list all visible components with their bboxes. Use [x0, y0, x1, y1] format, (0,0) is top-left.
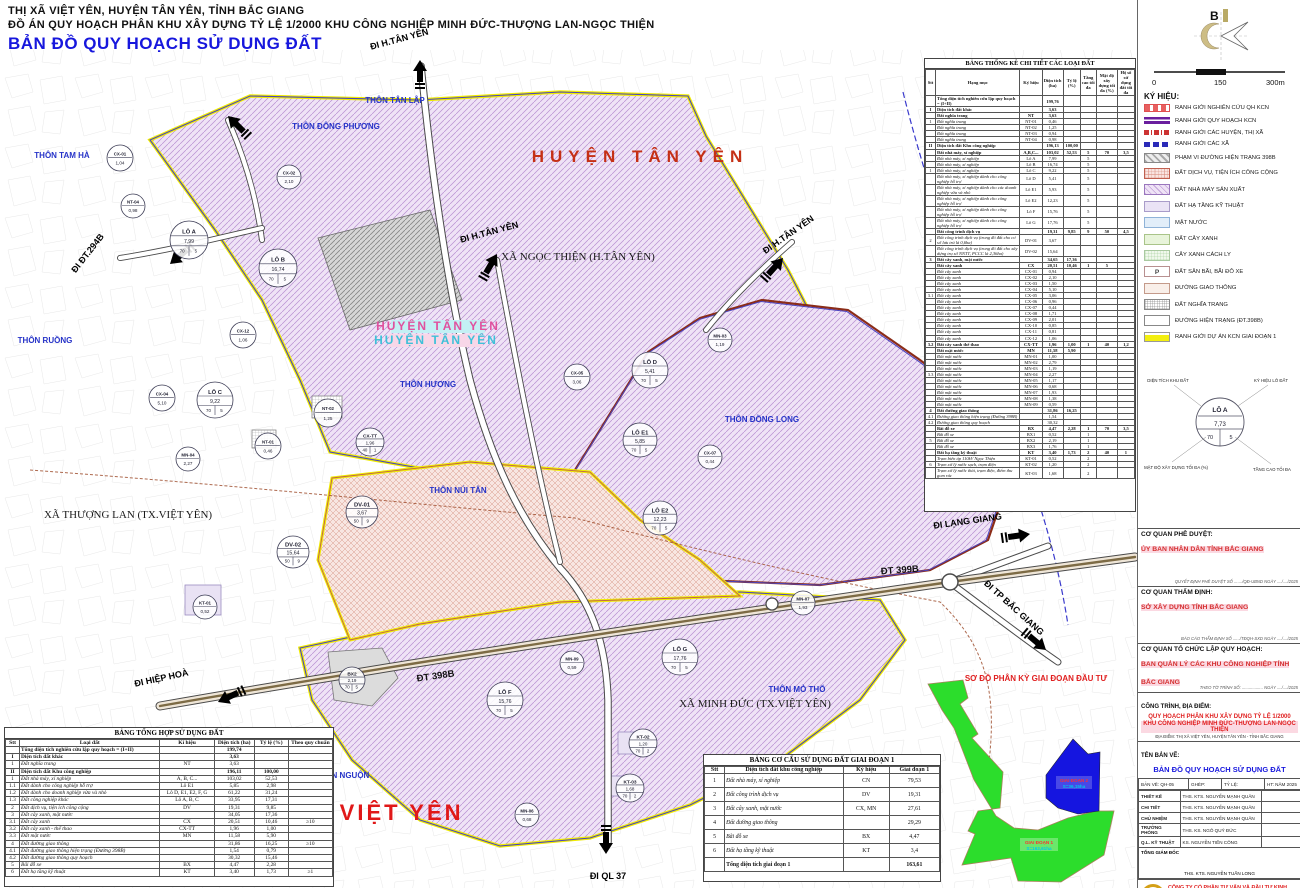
table-cell: Lô F	[1020, 206, 1042, 217]
table-row: 3.3Đất mặt nướcMN11,585,90	[6, 833, 333, 840]
table-cell: ≥10	[288, 840, 332, 847]
table-cell: Đất nghĩa trang	[20, 761, 160, 768]
table-cell: II	[6, 768, 20, 775]
sw-398b	[1144, 153, 1170, 163]
table-cell: 5	[1080, 195, 1096, 206]
table-row: Tổng diện tích nghiên cứu lập quy hoạch …	[6, 747, 333, 754]
table-cell: CX	[160, 819, 214, 826]
legend-item: ĐẤT HẠ TẦNG KỸ THUẬT	[1144, 201, 1299, 212]
map-label: THÔN TÂN LẬP	[365, 96, 425, 105]
lot-circle-text: 70	[269, 277, 274, 282]
table-cell: BX	[160, 862, 214, 869]
table-cell: Đất đường giao thông	[20, 840, 160, 847]
sw-cemetery	[1144, 299, 1170, 310]
sw-factory	[1144, 184, 1170, 195]
lot-circle-outline	[791, 591, 815, 615]
lot-circle-text: 5,85	[635, 439, 645, 445]
table-cell: Đất mặt nước	[20, 833, 160, 840]
table-cell: Đất dịch vụ, tiện ích công cộng	[20, 804, 160, 811]
table-cell	[843, 816, 889, 830]
staff-cell	[1262, 837, 1300, 848]
lot-circle-outline	[564, 364, 590, 390]
legend-list: RANH GIỚI NGHIÊN CỨU QH KCNRANH GIỚI QUY…	[1144, 104, 1299, 347]
table-cell: 5	[6, 862, 20, 869]
table-cell	[288, 775, 332, 782]
lot-circle-text: MN-03	[713, 334, 727, 339]
table-cell: Lô A, B, C	[160, 797, 214, 804]
table-row: 6Đất hạ tầng kỹ thuậtKT3,401,73≥1	[6, 869, 333, 876]
table-cell	[926, 195, 936, 206]
title-block: CÔNG TRÌNH, ĐỊA ĐIỂM: QUY HOẠCH PHÂN KHU…	[1138, 692, 1300, 888]
column-header: Ký hiệu	[843, 767, 889, 774]
approval-authority: CƠ QUAN PHÊ DUYỆT: ỦY BAN NHÂN DÂN TỈNH …	[1138, 528, 1300, 586]
table-cell	[705, 858, 725, 872]
lot-circle-text: 50	[285, 559, 290, 564]
svg-text:KÝ HIỆU LÔ ĐẤT: KÝ HIỆU LÔ ĐẤT	[1254, 378, 1288, 383]
table-cell: 1,68	[1042, 468, 1063, 479]
table-row: Đất nhà máy, xí nghiệp dành cho công ngh…	[926, 173, 1135, 184]
lot-circle: DV-013,67509	[346, 496, 378, 528]
table-cell: 5,93	[1042, 184, 1063, 195]
column-header: Loại đất	[20, 740, 160, 747]
lot-circle-text: 40	[362, 447, 367, 452]
svg-text:150: 150	[1214, 78, 1227, 87]
staff-row: CHỦ NHIỆMTHS. KTS. NGUYỄN MẠNH QUÂN	[1139, 813, 1300, 824]
table-cell: 3	[705, 802, 725, 816]
lot-circle-text: MN-06	[520, 809, 534, 814]
svg-text:S=36,15ha: S=36,15ha	[1063, 784, 1086, 789]
lot-circle-text: 70	[671, 665, 676, 670]
lot-circle-text: 15,64	[287, 551, 300, 557]
lot-circle-text: 0,68	[523, 817, 532, 822]
sw-kcn	[1144, 117, 1170, 124]
legend-label: MẶT NƯỚC	[1175, 220, 1207, 226]
table-cell: Bãi đỗ xe	[725, 830, 844, 844]
table-cell: I	[6, 754, 20, 761]
table-cell	[288, 811, 332, 818]
column-header: Stt	[926, 70, 936, 96]
table-row: Tổng diện tích nghiên cứu lập quy hoạch …	[926, 96, 1135, 107]
table-cell: KT-03	[1020, 468, 1042, 479]
table-cell	[6, 747, 20, 754]
table-cell: Tổng diện tích nghiên cứu lập quy hoạch …	[936, 96, 1020, 107]
table-cell: 5	[1080, 206, 1096, 217]
drawing-name-section: TÊN BẢN VẼ: BẢN ĐỒ QUY HOẠCH SỬ DỤNG ĐẤT	[1138, 741, 1300, 778]
plan-sheet: HUYỆN TÂN YÊNXÃ NGỌC THIỆN (H.TÂN YÊN)XÃ…	[0, 0, 1300, 888]
table-cell: 52,53	[254, 775, 288, 782]
lot-circle-text: 1,68	[626, 786, 635, 791]
page-title: BẢN ĐỒ QUY HOẠCH SỬ DỤNG ĐẤT	[8, 34, 655, 54]
table-cell: 20,51	[214, 819, 254, 826]
table-cell	[254, 761, 288, 768]
column-header: Diện tích (ha)	[1042, 70, 1063, 96]
legend-title: KÝ HIỆU:	[1144, 92, 1179, 101]
table-cell: 5,41	[1042, 173, 1063, 184]
lot-circle-text: KT-01	[199, 601, 212, 606]
map-label: THÔN ĐỒNG LONG	[725, 414, 799, 424]
staff-cell: TRƯỞNG PHÒNG	[1139, 824, 1181, 837]
lot-circle-text: 70	[641, 378, 646, 383]
table-cell: Đất công trình dịch vụ	[725, 788, 844, 802]
table-cell	[1063, 246, 1080, 257]
table-cell: 33,95	[214, 797, 254, 804]
table-cell: 31,86	[214, 840, 254, 847]
table-cell	[926, 206, 936, 217]
table-cell: 17,76	[1042, 217, 1063, 228]
sw-greeniso	[1144, 250, 1170, 261]
table-row: 4Đất đường giao thông31,8616,25≥10	[6, 840, 333, 847]
table-cell	[843, 858, 889, 872]
map-label: XÃ MINH ĐỨC (TX.VIỆT YÊN)	[679, 698, 831, 710]
lot-circle-outline	[230, 322, 256, 348]
table-cell: KT	[843, 844, 889, 858]
lot-circle-text: MN-09	[565, 657, 579, 662]
table-cell: Đất cây xanh, mặt nước	[725, 802, 844, 816]
table-row: 2Đất dịch vụ, tiện ích công cộngDV19,319…	[6, 804, 333, 811]
table-cell: Trạm xử lý nước thải, trạm điện, điểm th…	[936, 468, 1020, 479]
table-cell: Đất nhà máy, xí nghiệp	[20, 775, 160, 782]
table-cell: 1,00	[254, 826, 288, 833]
lot-circle: MN-031,19	[708, 328, 732, 352]
table-cell: 1,54	[214, 847, 254, 854]
lot-circle-outline	[708, 328, 732, 352]
lot-circle-text: 2,27	[184, 461, 193, 466]
lot-circle: CX-022,10	[277, 165, 301, 189]
column-header: Hệ số sử dụng đất tối đa	[1117, 70, 1134, 96]
project-line: ĐỒ ÁN QUY HOẠCH PHÂN KHU XÂY DỰNG TỶ LỆ …	[8, 19, 655, 31]
lot-circle-text: 70	[496, 708, 501, 713]
appraisal-authority: CƠ QUAN THẨM ĐỊNH: SỞ XÂY DỰNG TỈNH BẮC …	[1138, 586, 1300, 643]
lot-circle: CX-045,10	[149, 385, 175, 411]
table-cell	[288, 833, 332, 840]
legend-label: ĐẤT DỊCH VỤ, TIỆN ÍCH CÔNG CỘNG	[1175, 170, 1278, 176]
table-cell: 100,00	[254, 768, 288, 775]
legend-label: RANH GIỚI QUY HOẠCH KCN	[1175, 118, 1256, 124]
lot-circle-text: 70	[631, 447, 636, 452]
table-cell: DV-02	[1020, 246, 1042, 257]
table-cell: DV	[843, 788, 889, 802]
table-cell: Lô D	[1020, 173, 1042, 184]
lot-circle: CX-053,06	[564, 364, 590, 390]
table-cell	[160, 855, 214, 862]
lot-circle: KT-031,68702	[616, 774, 644, 802]
table-cell	[1117, 184, 1134, 195]
lot-circle-text: 16,74	[272, 267, 285, 273]
table-cell	[1117, 206, 1134, 217]
staff-row: CHI TIẾTTHS. KTS. NGUYỄN MẠNH QUÂN	[1139, 802, 1300, 813]
lot-circle-text: DV-02	[285, 543, 301, 549]
table-cell	[1080, 96, 1096, 107]
lot-circle-outline	[314, 399, 342, 427]
lot-circle: BX22,19705	[339, 667, 365, 693]
lot-circle-text: 2,19	[348, 678, 357, 683]
table-cell: NT	[160, 761, 214, 768]
table-cell	[926, 246, 936, 257]
table-cell: Đất nhà máy, xí nghiệp dành cho công ngh…	[936, 195, 1020, 206]
legend-item: RANH GIỚI CÁC XÃ	[1144, 141, 1299, 147]
phase1-label: GIAI ĐOẠN 1 S=163,61ha	[1020, 838, 1058, 851]
table-cell: 2	[6, 804, 20, 811]
lot-circle: LÔ C9,22705	[197, 382, 233, 418]
column-header: Tỷ lệ (%)	[254, 740, 288, 747]
table-cell: Lô D, E1, E2, F, G	[160, 790, 214, 797]
table-cell	[1096, 195, 1117, 206]
column-header: Theo quy chuẩn	[288, 740, 332, 747]
table-row: 1.1Đất dành cho công nghiệp hỗ trợLô E15…	[6, 783, 333, 790]
lot-circle: LÔ G17,76705	[662, 639, 698, 675]
table-cell: CX-TT	[160, 826, 214, 833]
lot-circle-outline	[255, 433, 281, 459]
legend-label: ĐẤT HẠ TẦNG KỸ THUẬT	[1175, 203, 1244, 209]
legend-label: ĐẤT NGHĨA TRANG	[1175, 302, 1228, 308]
table-row: 1Đất nhà máy, xí nghiệpCN79,53	[705, 774, 940, 788]
legend-label: ĐẤT CÂY XANH	[1175, 236, 1218, 242]
sw-phase1	[1144, 332, 1170, 342]
lot-circle-text: 0,46	[264, 449, 273, 454]
table-cell: 5,90	[254, 833, 288, 840]
table-cell: Lô E2	[1020, 195, 1042, 206]
lot-circle-text: KT-03	[623, 779, 636, 785]
table-cell: 3.2	[6, 826, 20, 833]
svg-text:LÔ A: LÔ A	[1212, 405, 1228, 414]
table-cell: Tổng diện tích giai đoạn 1	[725, 858, 844, 872]
table-cell: 5	[1080, 184, 1096, 195]
svg-text:5: 5	[1229, 435, 1232, 441]
lot-circle-text: 12,23	[654, 517, 667, 523]
lot-circle-text: 70	[180, 249, 185, 254]
lot-circle-text: LÔ G	[673, 645, 688, 653]
lot-circle-text: 0,52	[201, 609, 210, 614]
table-cell: Đất công nghiệp khác	[20, 797, 160, 804]
lot-circle-text: 5,10	[158, 401, 167, 406]
column-header: Diện tích đất khu công nghiệp	[725, 767, 844, 774]
lot-circle: NT-021,25	[314, 399, 342, 427]
table-cell: 0,79	[254, 847, 288, 854]
table-row: 2Đất công trình dịch vụDV19,31	[705, 788, 940, 802]
staff-cell: THS. KTS. NGUYỄN MẠNH QUÂN	[1180, 813, 1262, 824]
table-cell: 6	[6, 869, 20, 876]
table-cell	[1096, 234, 1117, 245]
table-cell	[1117, 173, 1134, 184]
phase1-structure-table: BẢNG CƠ CẤU SỬ DỤNG ĐẤT GIAI ĐOẠN 1 SttD…	[703, 754, 941, 882]
legend-item: RANH GIỚI DỰ ÁN KCN GIAI ĐOẠN 1	[1144, 332, 1299, 342]
table-cell	[1096, 173, 1117, 184]
staff-row: TRƯỞNG PHÒNGTHS. KS. NGÔ QUÝ ĐỨC	[1139, 824, 1300, 837]
lot-circle: NT-040,98	[121, 194, 145, 218]
sw-parking: P	[1144, 266, 1170, 277]
table-cell: Đất nhà máy, xí nghiệp dành cho công ngh…	[936, 206, 1020, 217]
map-label: THÔN MỎ THỔ	[769, 685, 826, 694]
table-cell: 103,02	[214, 775, 254, 782]
table-cell	[288, 754, 332, 761]
svg-text:MẬT ĐỘ XÂY DỰNG TỐI ĐA (%): MẬT ĐỘ XÂY DỰNG TỐI ĐA (%)	[1144, 465, 1208, 470]
map-label: THÔN TAM HÀ	[34, 151, 90, 160]
lot-circle-text: MN-04	[181, 453, 195, 458]
map-label: THÔN NÚI TÂN	[429, 486, 487, 495]
lot-circle-text: 1,25	[324, 416, 333, 421]
lot-circle-text: 15,76	[499, 699, 512, 705]
lot-circle: LÔ D5,41705	[632, 352, 668, 388]
lot-circle-text: BX2	[347, 672, 357, 678]
sw-green	[1144, 234, 1170, 245]
lot-circle-text: LÔ E1	[632, 428, 650, 436]
lot-circle-outline	[515, 803, 539, 827]
table-cell: 4	[6, 840, 20, 847]
table-cell	[288, 826, 332, 833]
table-cell	[288, 761, 332, 768]
staff-cell	[1262, 802, 1300, 813]
summary-landuse-table: BẢNG TỔNG HỢP SỬ DỤNG ĐẤT SttLoại đấtKí …	[4, 727, 334, 887]
table-cell	[1096, 206, 1117, 217]
lot-circle-text: 70	[345, 685, 350, 690]
table-cell: 4	[705, 816, 725, 830]
staff-cell: THIẾT KẾ	[1139, 791, 1181, 802]
staff-cell: Q.L. KỸ THUẬT	[1139, 837, 1181, 848]
right-panel: B 0 150 300m KÝ HIỆU: RANH GIỚI NGHIÊN C…	[1137, 0, 1300, 888]
table-row: 1.2Đất dành cho doanh nghiệp vừa và nhỏL…	[6, 790, 333, 797]
sw-service	[1144, 168, 1170, 179]
table-cell: 2	[1080, 468, 1096, 479]
table-cell: 5	[1080, 173, 1096, 184]
table-cell	[1096, 246, 1117, 257]
lot-circle-text: 5,41	[645, 369, 655, 375]
table-cell: Tổng diện tích nghiên cứu lập quy hoạch …	[20, 747, 160, 754]
lot-circle-text: 1,93	[799, 605, 808, 610]
staff-cell: THS. KTS. NGUYỄN MẠNH QUÂN	[1180, 802, 1262, 813]
lot-circle-text: 7,99	[184, 239, 194, 245]
table-cell	[1117, 195, 1134, 206]
phase-table-title: BẢNG CƠ CẤU SỬ DỤNG ĐẤT GIAI ĐOẠN 1	[704, 755, 940, 766]
lot-circle-text: 3,06	[573, 380, 582, 385]
compass-needle	[1221, 22, 1248, 50]
table-cell: Đất dành cho công nghiệp hỗ trợ	[20, 783, 160, 790]
table-cell	[1063, 96, 1080, 107]
table-row: 3Đất cây xanh, mặt nướcCX, MN27,61	[705, 802, 940, 816]
table-cell: Đất hạ tầng kỹ thuật	[725, 844, 844, 858]
inset-title: SƠ ĐỒ PHÂN KỲ GIAI ĐOẠN ĐẦU TƯ	[965, 673, 1108, 683]
table-cell: 6	[705, 844, 725, 858]
table-cell: 4.1	[6, 847, 20, 854]
table-cell: Bãi đỗ xe	[20, 862, 160, 869]
lot-circle-text: NT-04	[127, 200, 140, 205]
table-row: 1Đất nghĩa trangNT3,63	[6, 761, 333, 768]
staff-cell: THS. KTS. NGUYỄN MẠNH QUÂN	[1180, 791, 1262, 802]
table-cell: 61,22	[214, 790, 254, 797]
table-cell: 12,23	[1042, 195, 1063, 206]
table-row: Đất nhà máy, xí nghiệp dành cho công ngh…	[926, 206, 1135, 217]
table-cell	[1063, 195, 1080, 206]
table-cell	[1117, 96, 1134, 107]
table-cell	[1063, 184, 1080, 195]
drawing-meta-grid: BẢN VẼ: QH-05 GHÉP: TỶ LỆ: HT: NĂM 2025	[1138, 778, 1300, 790]
column-header: Tầng cao tối đa	[1080, 70, 1096, 96]
svg-text:TẦNG CAO TỐI ĐA: TẦNG CAO TỐI ĐA	[1253, 467, 1291, 472]
lot-circle-text: NT-02	[322, 406, 335, 411]
column-header: Hạng mục	[936, 70, 1020, 96]
table-cell: 17,36	[254, 811, 288, 818]
sw-road	[1144, 283, 1170, 294]
table-cell: 2	[926, 234, 936, 245]
legend-label: RANH GIỚI DỰ ÁN KCN GIAI ĐOẠN 1	[1175, 334, 1276, 340]
table-cell: Đất cây xanh	[20, 819, 160, 826]
table-cell: 199,76	[1042, 96, 1063, 107]
lot-circle-text: 0,59	[568, 665, 577, 670]
lot-circle-text: LÔ B	[271, 256, 285, 264]
table-cell: 199,74	[214, 747, 254, 754]
staff-cell	[1262, 813, 1300, 824]
lot-circle: DV-0215,64509	[277, 536, 309, 568]
table-cell	[160, 768, 214, 775]
table-cell	[1117, 217, 1134, 228]
table-cell: Đất hạ tầng kỹ thuật	[20, 869, 160, 876]
table-cell: Diện tích đất khác	[20, 754, 160, 761]
table-cell	[926, 173, 936, 184]
table-cell	[288, 862, 332, 869]
table-cell: KT	[160, 869, 214, 876]
table-cell: Đường giao thông hiện trạng (Đường 398B)	[936, 413, 1020, 419]
lot-circle: LÔ E15,85705	[623, 423, 657, 457]
lot-circle-text: KT-02	[636, 734, 649, 740]
lot-circle-text: CX-05	[571, 370, 584, 375]
table-cell	[254, 754, 288, 761]
table-cell	[288, 855, 332, 862]
detail-landuse-table: BẢNG THỐNG KÊ CHI TIẾT CÁC LOẠI ĐẤT SttH…	[924, 58, 1136, 512]
table-row: 3Đất cây xanh, mặt nước34,0517,36	[6, 811, 333, 818]
sw-water	[1144, 217, 1170, 228]
table-row: Trạm xử lý nước thải, trạm điện, điểm th…	[926, 468, 1135, 479]
staff-row: THIẾT KẾTHS. KTS. NGUYỄN MẠNH QUÂN	[1139, 791, 1300, 802]
legend-item: ĐƯỜNG HIỆN TRẠNG (ĐT.398B)	[1144, 315, 1299, 326]
table-cell	[288, 747, 332, 754]
table-row: Đất nhà máy, xí nghiệp dành cho các doan…	[926, 184, 1135, 195]
company-block: KBI CÔNG TY CỔ PHẦN TƯ VẤN VÀ ĐẦU TƯ KIN…	[1138, 879, 1300, 888]
table-cell: 4,47	[214, 862, 254, 869]
map-label: XÃ THƯỢNG LAN (TX.VIỆT YÊN)	[44, 509, 212, 521]
table-cell: Đất cây xanh - thể thao	[20, 826, 160, 833]
table-cell: BX	[843, 830, 889, 844]
table-cell: 2	[705, 788, 725, 802]
table-cell: 1.3	[6, 797, 20, 804]
table-cell: 2,98	[254, 783, 288, 790]
table-cell: A, B, C...	[160, 775, 214, 782]
staff-cell	[1262, 791, 1300, 802]
svg-text:S=163,61ha: S=163,61ha	[1026, 846, 1052, 851]
table-cell	[1063, 468, 1080, 479]
table-cell: 17,31	[254, 797, 288, 804]
lot-circle-text: CX-04	[156, 391, 169, 396]
lot-circle-outline	[277, 165, 301, 189]
table-cell: Đất công trình dịch vụ (trong đó đất cho…	[936, 246, 1020, 257]
province-line: THỊ XÃ VIỆT YÊN, HUYỆN TÂN YÊN, TỈNH BẮC…	[8, 5, 655, 17]
legend-item: RANH GIỚI CÁC HUYỆN, THỊ XÃ	[1144, 130, 1299, 136]
table-cell: 16,25	[254, 840, 288, 847]
lot-circle: NT-010,46	[255, 433, 281, 459]
table-cell: 3,40	[214, 869, 254, 876]
table-cell	[254, 747, 288, 754]
legend-item: CÂY XANH CÁCH LY	[1144, 250, 1299, 261]
lot-circle: CX-070,44	[698, 445, 722, 469]
table-row: IDiện tích đất khác3,63	[6, 754, 333, 761]
lot-circle: LÔ E212,23705	[643, 501, 677, 535]
table-cell: Đất dành cho doanh nghiệp vừa và nhỏ	[20, 790, 160, 797]
table-cell: 1.1	[6, 783, 20, 790]
table-cell: 10,46	[254, 819, 288, 826]
table-cell: 1,96	[214, 826, 254, 833]
table-cell	[288, 797, 332, 804]
director-row: TỔNG GIÁM ĐỐC THS. KTS. NGUYỄN TUẤN LONG	[1138, 848, 1300, 879]
lot-circle-text: CX-TT	[363, 433, 377, 439]
table-row: 1.3Đất công nghiệp khácLô A, B, C33,9517…	[6, 797, 333, 804]
